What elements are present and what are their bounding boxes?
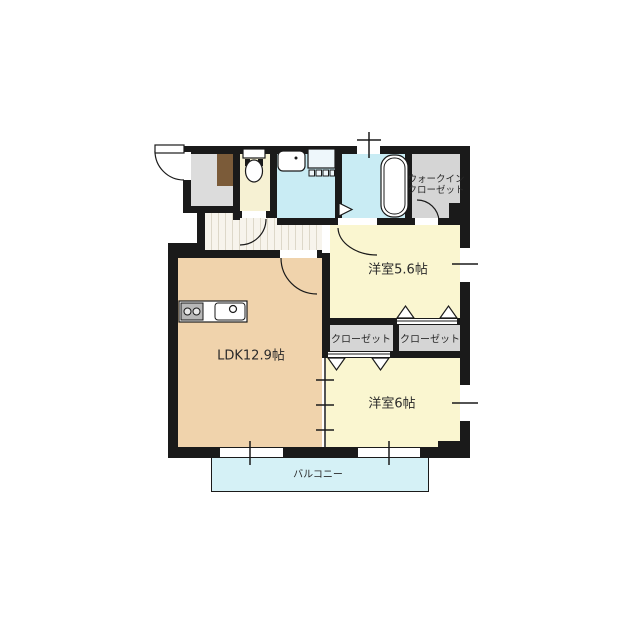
hall-bedroom1-opening bbox=[322, 225, 330, 253]
closet-right-label: クローゼット bbox=[400, 331, 460, 346]
window-top-bath bbox=[357, 146, 380, 154]
wall-bottom bbox=[168, 447, 470, 458]
walk-in-closet-label: ウォークイン クローゼット bbox=[407, 174, 464, 196]
toilet-door-opening bbox=[242, 211, 266, 218]
window-right-bedroom1 bbox=[460, 248, 470, 282]
wic-label-line2: クローゼット bbox=[407, 185, 464, 196]
closet-right-opening bbox=[397, 319, 457, 324]
wic-label-line1: ウォークイン bbox=[407, 174, 464, 185]
washroom-floor bbox=[277, 154, 335, 221]
wall-toilet-wash bbox=[270, 146, 277, 218]
wall-top bbox=[183, 146, 470, 154]
wall-entry-toilet bbox=[233, 146, 240, 220]
shoe-cabinet bbox=[217, 154, 233, 186]
wic-door-opening bbox=[415, 218, 438, 225]
closet-left-label: クローゼット bbox=[331, 331, 391, 346]
wall-closet-divider bbox=[393, 318, 399, 358]
toilet-room-floor bbox=[240, 154, 270, 213]
floorplan-canvas: LDK12.9帖 洋室5.6帖 洋室6帖 クローゼット クローゼット ウォークイ… bbox=[0, 0, 640, 640]
wall-wic-corner bbox=[449, 203, 470, 225]
front-door-opening bbox=[183, 152, 191, 180]
window-right-bedroom2 bbox=[460, 385, 470, 421]
front-door-leaf bbox=[155, 145, 184, 153]
bedroom1-label: 洋室5.6帖 bbox=[368, 259, 428, 278]
bedroom1-door-opening bbox=[338, 218, 377, 225]
front-door-arc bbox=[155, 151, 184, 180]
wall-wash-bath bbox=[335, 154, 342, 218]
wall-corner-se bbox=[438, 441, 470, 458]
window-bottom-bedroom2 bbox=[358, 448, 420, 457]
balcony-label: バルコニー bbox=[293, 466, 343, 481]
ldk-label: LDK12.9帖 bbox=[217, 345, 285, 364]
bedroom2-label: 洋室6帖 bbox=[368, 393, 415, 412]
window-bottom-ldk bbox=[220, 448, 283, 457]
ldk-door-opening bbox=[280, 250, 317, 258]
bathroom-floor bbox=[342, 154, 405, 218]
wall-entrance-south bbox=[183, 206, 240, 213]
wall-left-ldk bbox=[168, 243, 178, 458]
closet-left-opening bbox=[328, 352, 390, 357]
